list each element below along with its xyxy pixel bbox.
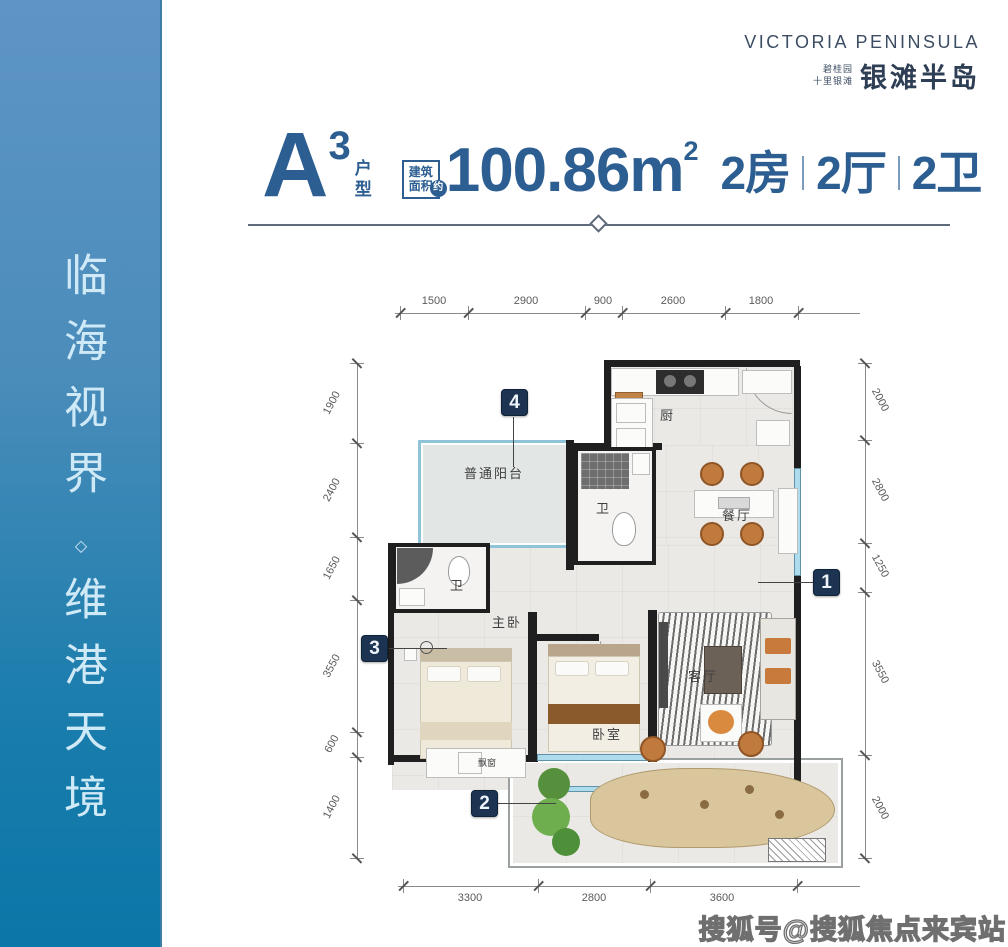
area-label-box: 建筑 面积 约 xyxy=(402,160,440,199)
dim-label: 3600 xyxy=(700,892,744,904)
unit-suffix-char1: 户 xyxy=(355,158,372,179)
dim-tick xyxy=(858,592,872,593)
nightstand xyxy=(404,648,417,661)
dim-label: 2900 xyxy=(504,295,548,307)
master-headboard xyxy=(420,648,512,661)
brand-sub-line2: 十里银滩 xyxy=(813,76,853,87)
dim-tick xyxy=(350,600,364,601)
marker-leader xyxy=(498,803,556,804)
area-unit-superscript: 2 xyxy=(683,136,698,167)
shoe-cabinet xyxy=(778,488,798,554)
plant xyxy=(538,768,570,800)
dim-label: 1650 xyxy=(316,546,347,590)
dim-tick xyxy=(798,306,799,320)
dim-label: 1800 xyxy=(739,295,783,307)
room-label-bay-window: 飘窗 xyxy=(478,756,496,769)
sofa-cushion xyxy=(765,638,791,654)
rock-dot xyxy=(640,790,649,799)
dim-tick xyxy=(858,543,872,544)
left-banner: 临海视界 ◇ 维港天境 xyxy=(0,0,162,947)
wall xyxy=(537,634,599,641)
dim-label: 1400 xyxy=(316,785,347,829)
kitchen-cabinet xyxy=(742,370,792,394)
dim-label: 2400 xyxy=(316,468,347,512)
brand-sub-line1: 碧桂园 xyxy=(813,64,853,75)
room-label-balcony: 普通阳台 xyxy=(464,463,524,482)
wall xyxy=(794,366,801,468)
room-label-living: 客厅 xyxy=(688,666,718,685)
burner xyxy=(684,375,696,387)
marker-leader xyxy=(513,417,514,467)
toilet-main xyxy=(612,512,636,546)
unit-title: A 3 户 型 建筑 面积 约 100.86m 2 2房 2厅 2卫 xyxy=(262,122,981,209)
wall xyxy=(604,360,800,367)
dim-label: 2800 xyxy=(572,892,616,904)
unit-suffix-char2: 型 xyxy=(355,179,372,200)
dining-chair xyxy=(700,462,724,486)
room-label-kitchen: 厨 xyxy=(660,405,675,424)
pillow xyxy=(555,661,589,676)
spec-baths: 2卫 xyxy=(912,150,982,196)
area-approx-badge: 约 xyxy=(430,180,447,197)
shower-main xyxy=(581,453,629,489)
area-label-line1: 建筑 xyxy=(409,165,433,179)
diamond-icon: ◇ xyxy=(75,536,87,556)
rock-dot xyxy=(775,810,784,819)
marker-leader xyxy=(758,582,813,583)
dim-tick xyxy=(797,879,798,893)
dim-tick xyxy=(400,306,401,320)
dim-label: 3300 xyxy=(448,892,492,904)
vertical-slogan: 临海视界 ◇ 维港天境 xyxy=(0,252,162,872)
armchair-cushion xyxy=(708,710,734,734)
bath-cabinet xyxy=(632,453,650,475)
terrace-pad xyxy=(768,838,826,862)
slogan-bottom: 维港天境 xyxy=(49,576,113,840)
unit-suffix: 户 型 xyxy=(355,158,372,201)
dim-tick xyxy=(350,757,364,758)
spec-halls: 2厅 xyxy=(816,150,886,196)
bed-runner xyxy=(548,704,640,724)
unit-superscript: 3 xyxy=(328,124,350,169)
dining-chair xyxy=(740,462,764,486)
terrace-cushion xyxy=(738,731,764,757)
rock-dot xyxy=(700,800,709,809)
brand-name-en: VICTORIA PENINSULA xyxy=(744,32,980,53)
brand-logo: 碧桂园 十里银滩 银滩半岛 xyxy=(813,56,980,95)
marker-3: 3 xyxy=(361,635,388,662)
spec-separator xyxy=(898,156,900,190)
dim-tick xyxy=(858,858,872,859)
pillow xyxy=(467,666,501,682)
dim-tick xyxy=(403,879,404,893)
dim-label: 2600 xyxy=(651,295,695,307)
dim-tick xyxy=(350,858,364,859)
dim-line-bottom xyxy=(398,886,860,887)
dim-label: 3550 xyxy=(316,644,347,688)
dim-label: 1900 xyxy=(316,381,347,425)
bath-sink xyxy=(399,588,425,606)
dim-label: 2000 xyxy=(864,378,895,422)
balcony-room xyxy=(418,440,574,548)
dim-tick xyxy=(585,306,586,320)
marker-leader xyxy=(389,648,447,649)
dim-tick xyxy=(538,879,539,893)
dim-label: 1500 xyxy=(412,295,456,307)
dim-tick xyxy=(350,732,364,733)
burner xyxy=(664,375,676,387)
divider-diamond-icon xyxy=(589,214,607,232)
terrace-cushion xyxy=(640,736,666,762)
marker-2: 2 xyxy=(471,790,498,817)
tv-unit xyxy=(659,622,668,708)
brand-name-cn: 银滩半岛 xyxy=(860,56,980,95)
dim-label: 3550 xyxy=(864,650,895,694)
wall xyxy=(604,360,611,452)
dim-tick xyxy=(858,755,872,756)
pillow xyxy=(595,661,629,676)
spec-separator xyxy=(802,156,804,190)
sink-basin xyxy=(616,403,646,423)
dim-tick xyxy=(350,363,364,364)
brand-sub-lines: 碧桂园 十里银滩 xyxy=(813,64,853,87)
plant xyxy=(552,828,580,856)
dim-tick xyxy=(350,537,364,538)
dim-label: 2000 xyxy=(864,786,895,830)
dim-label: 2800 xyxy=(864,468,895,512)
sink-basin xyxy=(616,428,646,448)
watermark: 搜狐号@搜狐焦点来宾站 xyxy=(699,908,1006,947)
dim-label: 1250 xyxy=(864,544,895,588)
room-label-dining: 餐厅 xyxy=(722,505,752,524)
marker-1: 1 xyxy=(813,569,840,596)
dining-chair xyxy=(700,522,724,546)
dim-label: 600 xyxy=(316,722,347,766)
dim-tick xyxy=(858,440,872,441)
rock-dot xyxy=(745,785,754,794)
dining-chair xyxy=(740,522,764,546)
dim-line-left xyxy=(357,363,358,860)
bedroom-headboard xyxy=(548,644,640,656)
spec-rooms: 2房 xyxy=(721,150,791,196)
dim-tick xyxy=(622,306,623,320)
sofa-cushion xyxy=(765,668,791,684)
rock-garden xyxy=(590,768,835,848)
wall xyxy=(528,612,537,762)
marker-leader-circle xyxy=(420,641,433,654)
wall xyxy=(566,440,574,570)
dim-tick xyxy=(725,306,726,320)
dim-line-right xyxy=(865,363,866,860)
dim-tick xyxy=(650,879,651,893)
slogan-top: 临海视界 xyxy=(49,252,113,516)
area-value: 100.86m xyxy=(446,140,684,202)
dim-tick xyxy=(468,306,469,320)
room-label-bath-main: 卫 xyxy=(596,498,611,517)
poster-page: 临海视界 ◇ 维港天境 VICTORIA PENINSULA 碧桂园 十里银滩 … xyxy=(0,0,1008,947)
window xyxy=(537,754,655,761)
room-label-master: 主卧 xyxy=(492,612,522,631)
dim-tick xyxy=(350,443,364,444)
dim-label: 900 xyxy=(581,295,625,307)
bed-throw xyxy=(420,722,512,740)
unit-letter: A xyxy=(262,122,328,209)
room-label-bath-master: 卫 xyxy=(450,575,465,594)
fridge xyxy=(756,420,790,446)
room-label-bedroom: 卧室 xyxy=(592,724,622,743)
marker-4: 4 xyxy=(501,389,528,416)
pillow xyxy=(427,666,461,682)
dim-tick xyxy=(858,363,872,364)
